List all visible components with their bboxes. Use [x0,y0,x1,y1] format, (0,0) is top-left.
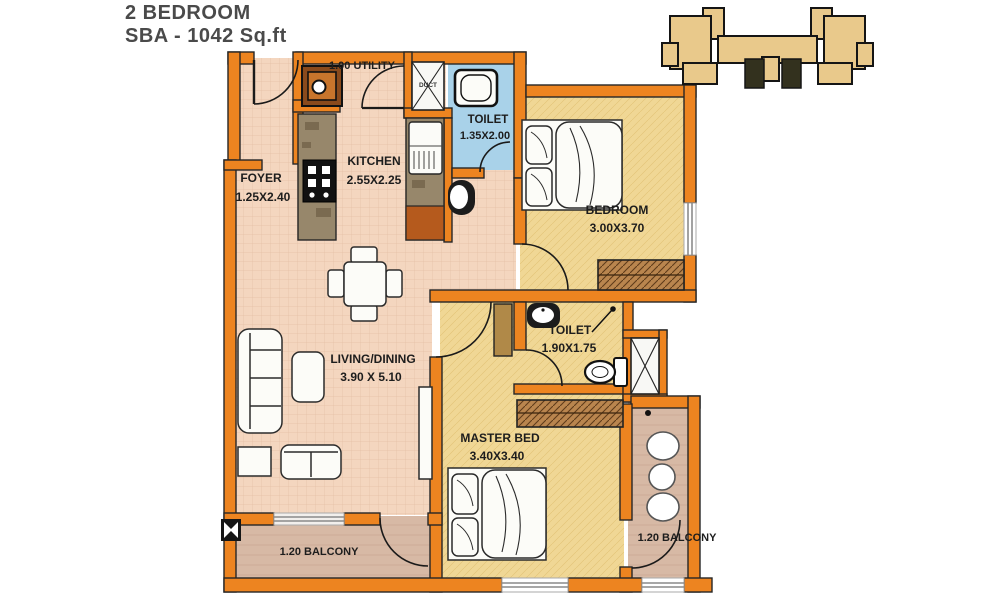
balcony-right-bottom-window [642,578,684,592]
wc-toilet2 [585,358,627,386]
door-stopper-dot [645,410,651,416]
foyer-dims: 1.25X2.40 [236,190,291,204]
floorplan-page: 2 BEDROOM SBA - 1042 Sq.ft 1.00 UTILITY … [0,0,1000,600]
toilet2-name: TOILET [549,323,591,337]
plan-title: 2 BEDROOM [125,2,287,25]
utility-washing-point [302,66,342,106]
toilet2-dims: 1.90X1.75 [542,341,597,355]
living-side-window-icon [221,519,241,541]
toilet1-dims: 1.35X2.00 [460,130,510,142]
living-name: LIVING/DINING [330,352,415,366]
corridor-cupboard [494,304,512,356]
kitchen-name: KITCHEN [347,154,400,168]
sofa [238,329,282,433]
kitchen-platform-block [406,206,444,240]
key-plan [655,5,885,100]
foyer-name: FOYER [240,171,281,185]
side-table [238,447,271,476]
living-balcony-sliding-window [274,513,344,525]
master-bottom-window [502,578,568,592]
bedroom-dims: 3.00X3.70 [590,221,645,235]
balcony-planters [647,432,679,521]
tv-unit [419,387,432,479]
plan-subtitle: SBA - 1042 Sq.ft [125,25,287,48]
living-dims: 3.90 X 5.10 [340,370,401,384]
bedroom-bed [522,120,622,210]
title-block: 2 BEDROOM SBA - 1042 Sq.ft [125,2,287,48]
bathtub [455,70,497,106]
master-dims: 3.40X3.40 [470,449,525,463]
balcony-bottom-label: 1.20 BALCONY [280,546,359,558]
utility-label: 1.00 UTILITY [329,60,395,72]
master-name: MASTER BED [460,431,539,445]
washbasin-corridor [448,180,475,215]
kitchen-dims: 2.55X2.25 [347,173,402,187]
master-bed [448,468,546,560]
gas-stove [303,160,336,202]
duct-label: DUCT [419,82,437,89]
toilet1-name: TOILET [468,114,509,126]
bedroom-window [684,203,696,255]
kitchen-sink [409,122,442,174]
loveseat-sofa [281,445,341,479]
bedroom-name: BEDROOM [586,203,649,217]
balcony-right-label: 1.20 BALCONY [638,532,717,544]
duct-shaft-middle [631,338,659,394]
balcony-right-floor [628,402,692,580]
accent-chair [292,352,324,402]
